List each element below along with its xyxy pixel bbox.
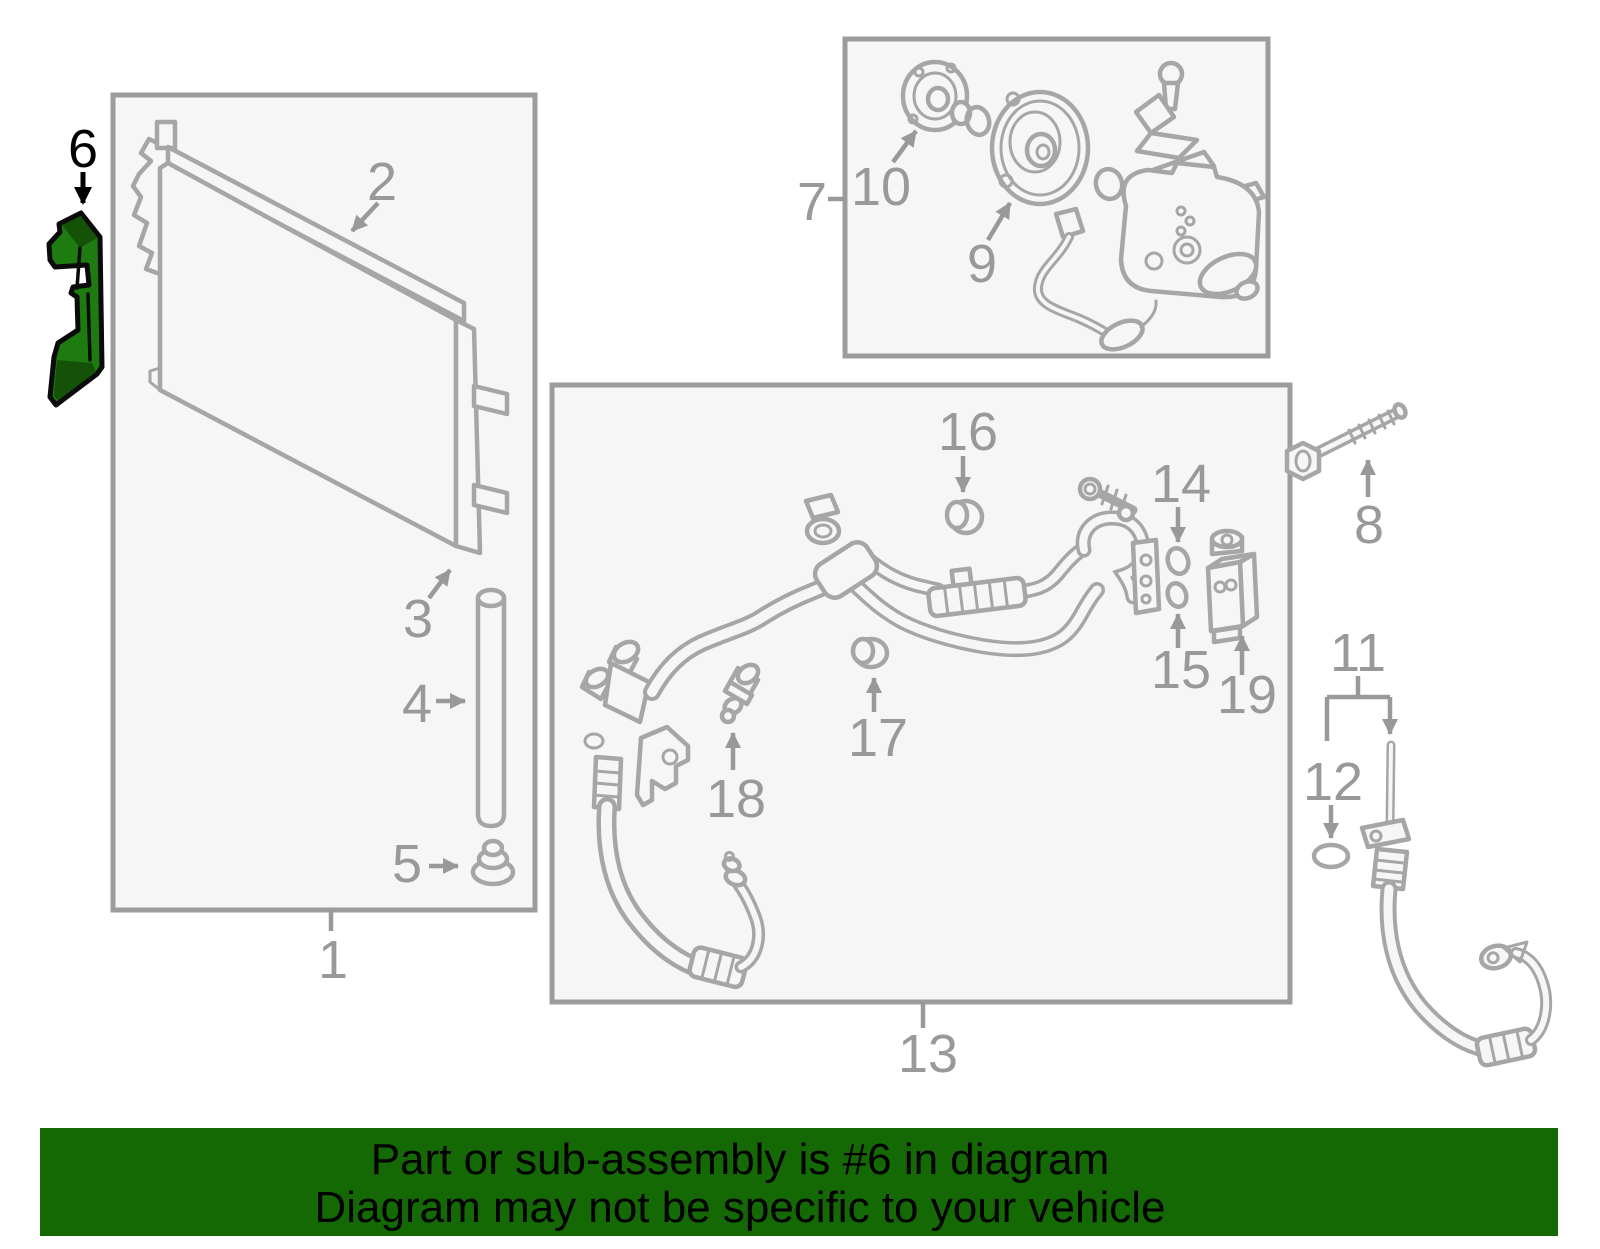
- cap-part16: [947, 501, 982, 533]
- drier-tube-top: [478, 590, 504, 606]
- part6-edge-line: [88, 294, 90, 360]
- callout-3[interactable]: 3: [403, 589, 433, 649]
- callout-16[interactable]: 16: [938, 402, 998, 462]
- callout-18[interactable]: 18: [706, 769, 766, 829]
- callout-4[interactable]: 4: [402, 674, 432, 734]
- callout-15[interactable]: 15: [1151, 640, 1211, 700]
- clutch-disc-part10: [903, 62, 970, 130]
- cap-part17: [853, 639, 887, 667]
- callout-14[interactable]: 14: [1151, 454, 1211, 514]
- drier-tube: [478, 598, 504, 826]
- banner-line-1: Part or sub-assembly is #6 in diagram: [40, 1136, 1440, 1184]
- condenser-top-peg: [157, 122, 175, 148]
- suction-hose-part11: [1362, 745, 1546, 1067]
- callout-6-highlighted[interactable]: 6: [68, 119, 98, 179]
- callout-9[interactable]: 9: [967, 234, 997, 294]
- callout-11[interactable]: 11: [1330, 623, 1386, 683]
- callout-10[interactable]: 10: [851, 157, 911, 217]
- callout-12[interactable]: 12: [1303, 752, 1363, 812]
- bolt-part8: [1287, 402, 1408, 479]
- callout-17[interactable]: 17: [848, 708, 908, 768]
- o-ring-part12: [1314, 845, 1348, 867]
- callout-7[interactable]: 7: [797, 172, 827, 232]
- callout-11-bracket: [1327, 676, 1390, 741]
- callout-19[interactable]: 19: [1217, 665, 1277, 725]
- parts-diagram-canvas: 1 2 3 4 5 6 7 8 9 10 11 12 13 14 15 16 1…: [0, 0, 1600, 1249]
- condenser-side-tank: [456, 320, 480, 553]
- callout-8[interactable]: 8: [1354, 495, 1384, 555]
- highlight-banner: Part or sub-assembly is #6 in diagram Di…: [40, 1128, 1558, 1236]
- parts-diagram-page: 1 2 3 4 5 6 7 8 9 10 11 12 13 14 15 16 1…: [0, 0, 1600, 1249]
- highlighted-part-6-air-guard[interactable]: [49, 213, 102, 405]
- callout-1[interactable]: 1: [318, 930, 348, 990]
- callout-13[interactable]: 13: [898, 1024, 958, 1084]
- callout-5[interactable]: 5: [392, 834, 422, 894]
- pulley-part9: [992, 92, 1088, 204]
- callout-2[interactable]: 2: [367, 152, 397, 212]
- banner-line-2: Diagram may not be specific to your vehi…: [40, 1184, 1440, 1232]
